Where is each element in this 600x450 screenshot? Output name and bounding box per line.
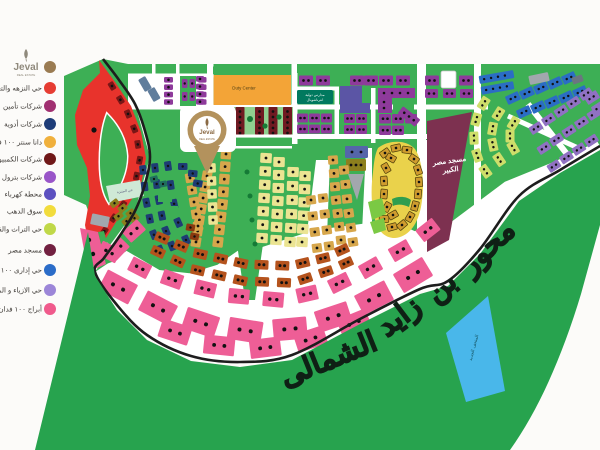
svg-text:مدارس دولية: مدارس دولية (305, 92, 324, 97)
svg-text:Jeval: Jeval (199, 129, 215, 136)
svg-text:حي التراث والفنون: حي التراث والفنون (0, 226, 42, 234)
svg-text:سوق الدهب: سوق الدهب (7, 208, 42, 216)
svg-text:شركات بترول: شركات بترول (2, 174, 42, 182)
svg-text:حي الازياء و الموضة: حي الازياء و الموضة (0, 287, 42, 295)
svg-text:Jeval: Jeval (13, 62, 38, 73)
svg-text:محطة كهرباء: محطة كهرباء (4, 191, 42, 199)
svg-text:حي النزهه والتعليم: حي النزهه والتعليم (0, 85, 42, 93)
svg-text:انترناشونال: انترناشونال (307, 97, 324, 102)
svg-text:REAL ESTATE: REAL ESTATE (199, 138, 215, 141)
svg-text:Duty Center: Duty Center (232, 86, 256, 91)
svg-text:حي إدارى ١٠٠ فدان: حي إدارى ١٠٠ فدان (0, 267, 42, 275)
svg-text:REAL ESTATE: REAL ESTATE (17, 73, 36, 77)
svg-text:شركات الكمبيوتر: شركات الكمبيوتر (0, 156, 42, 164)
svg-text:دانا سنتر ١٠٠ فدان: دانا سنتر ١٠٠ فدان (0, 139, 42, 147)
svg-text:مسجد مصر: مسجد مصر (7, 248, 42, 255)
